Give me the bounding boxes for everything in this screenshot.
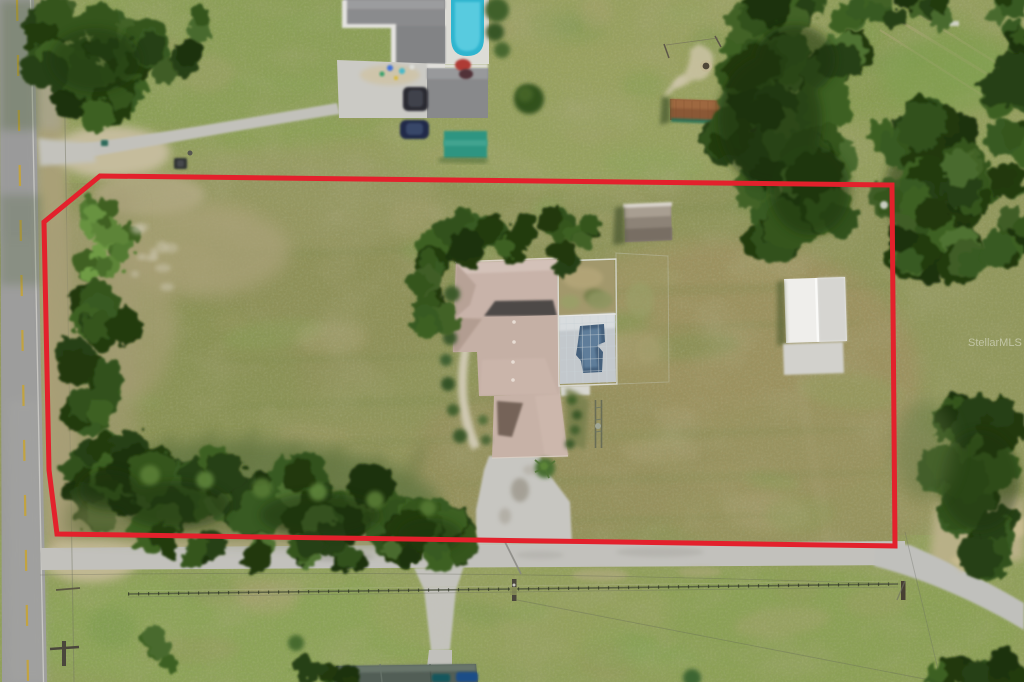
svg-text:StellarMLS: StellarMLS (968, 337, 1022, 349)
